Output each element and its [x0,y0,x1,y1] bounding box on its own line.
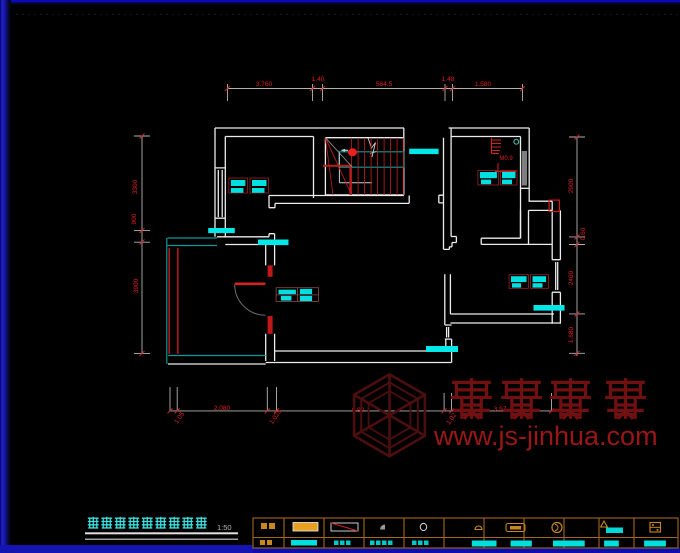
svg-text:1.40: 1.40 [312,76,325,83]
svg-text:M0.9: M0.9 [499,156,513,162]
svg-text:900: 900 [131,213,138,224]
svg-text:www.js-jinhua.com: www.js-jinhua.com [433,421,658,451]
svg-text:2900: 2900 [568,178,575,193]
svg-text:1.48: 1.48 [442,76,455,83]
svg-text:1.580: 1.580 [475,81,492,88]
svg-text:2.080: 2.080 [214,405,231,412]
svg-text:3900: 3900 [133,278,140,293]
svg-text:1:50: 1:50 [217,523,232,532]
svg-text:2400: 2400 [568,270,575,285]
svg-text:1.680: 1.680 [568,326,575,343]
svg-text:584.5: 584.5 [376,81,393,88]
svg-text:3.760: 3.760 [256,81,273,88]
svg-text:3300: 3300 [132,179,139,194]
svg-text:0.60: 0.60 [580,227,587,240]
